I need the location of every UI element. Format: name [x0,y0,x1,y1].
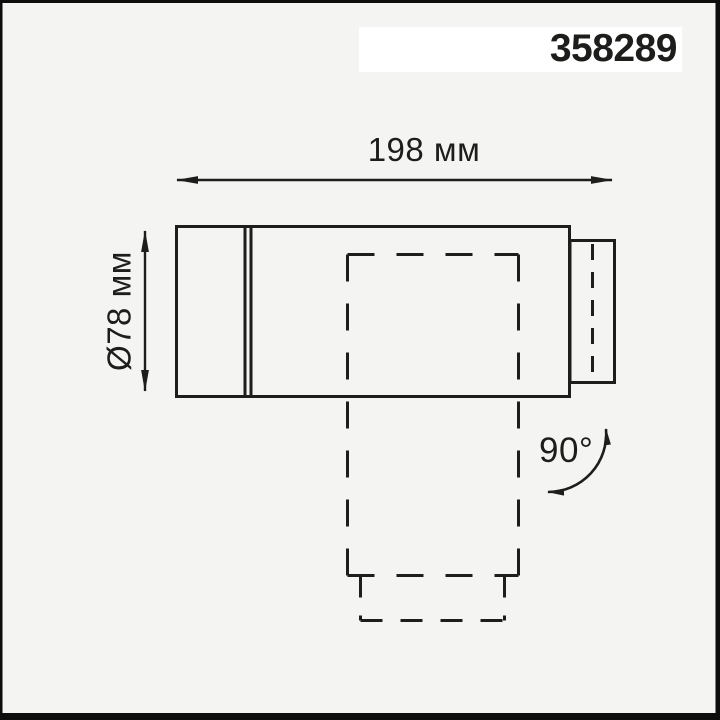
technical-drawing: 358289 198 мм Ø78 мм 90° [0,0,720,720]
width-dimension-label: 198 мм [368,131,481,168]
fixture-body-outline [177,227,570,397]
product-code: 358289 [550,27,677,70]
fixture-body [177,227,615,397]
rotation-angle-label: 90° [539,431,593,470]
rotated-position-outline [348,255,519,621]
diameter-dimension-label: Ø78 мм [101,251,138,371]
